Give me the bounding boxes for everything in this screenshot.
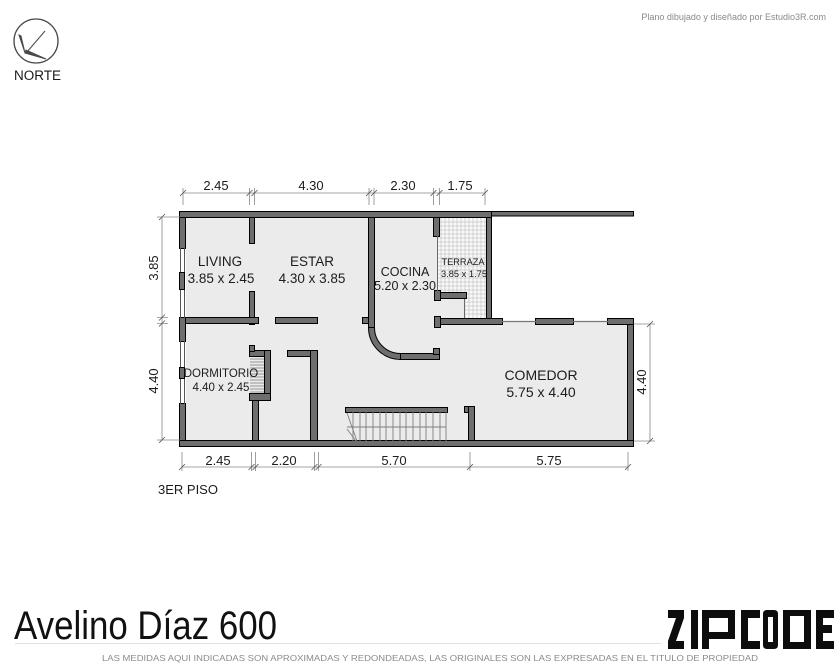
svg-text:3ER PISO: 3ER PISO (158, 482, 218, 497)
svg-text:TERRAZA: TERRAZA (442, 257, 486, 267)
svg-text:2.30: 2.30 (390, 178, 415, 193)
svg-text:5.70: 5.70 (381, 453, 406, 468)
svg-text:LIVING: LIVING (198, 254, 242, 269)
svg-text:2.45: 2.45 (205, 453, 230, 468)
svg-text:Avelino Díaz 600: Avelino Díaz 600 (14, 604, 277, 648)
svg-text:DORMITORIO: DORMITORIO (184, 368, 259, 380)
svg-text:4.30 x 3.85: 4.30 x 3.85 (279, 271, 346, 286)
svg-text:4.40: 4.40 (634, 369, 649, 394)
svg-text:COCINA: COCINA (381, 265, 430, 279)
svg-text:LAS MEDIDAS AQUI INDICADAS SON: LAS MEDIDAS AQUI INDICADAS SON APROXIMAD… (102, 653, 758, 663)
svg-text:5.75: 5.75 (536, 453, 561, 468)
svg-text:5.20 x 2.30: 5.20 x 2.30 (374, 279, 436, 293)
svg-text:4.30: 4.30 (298, 178, 323, 193)
svg-text:3.85: 3.85 (146, 255, 161, 280)
svg-text:4.40 x 2.45: 4.40 x 2.45 (193, 382, 250, 394)
svg-text:Plano dibujado y diseñado por: Plano dibujado y diseñado por Estudio3R.… (641, 12, 826, 22)
svg-text:2.20: 2.20 (271, 453, 296, 468)
svg-text:4.40: 4.40 (146, 368, 161, 393)
svg-text:COMEDOR: COMEDOR (504, 367, 577, 383)
svg-text:3.85 x 1.75: 3.85 x 1.75 (441, 269, 487, 279)
svg-text:NORTE: NORTE (14, 68, 61, 83)
svg-text:5.75 x 4.40: 5.75 x 4.40 (506, 384, 575, 400)
svg-text:1.75: 1.75 (447, 178, 472, 193)
svg-text:3.85 x 2.45: 3.85 x 2.45 (188, 271, 255, 286)
svg-text:ESTAR: ESTAR (290, 254, 334, 269)
svg-text:2.45: 2.45 (203, 178, 228, 193)
